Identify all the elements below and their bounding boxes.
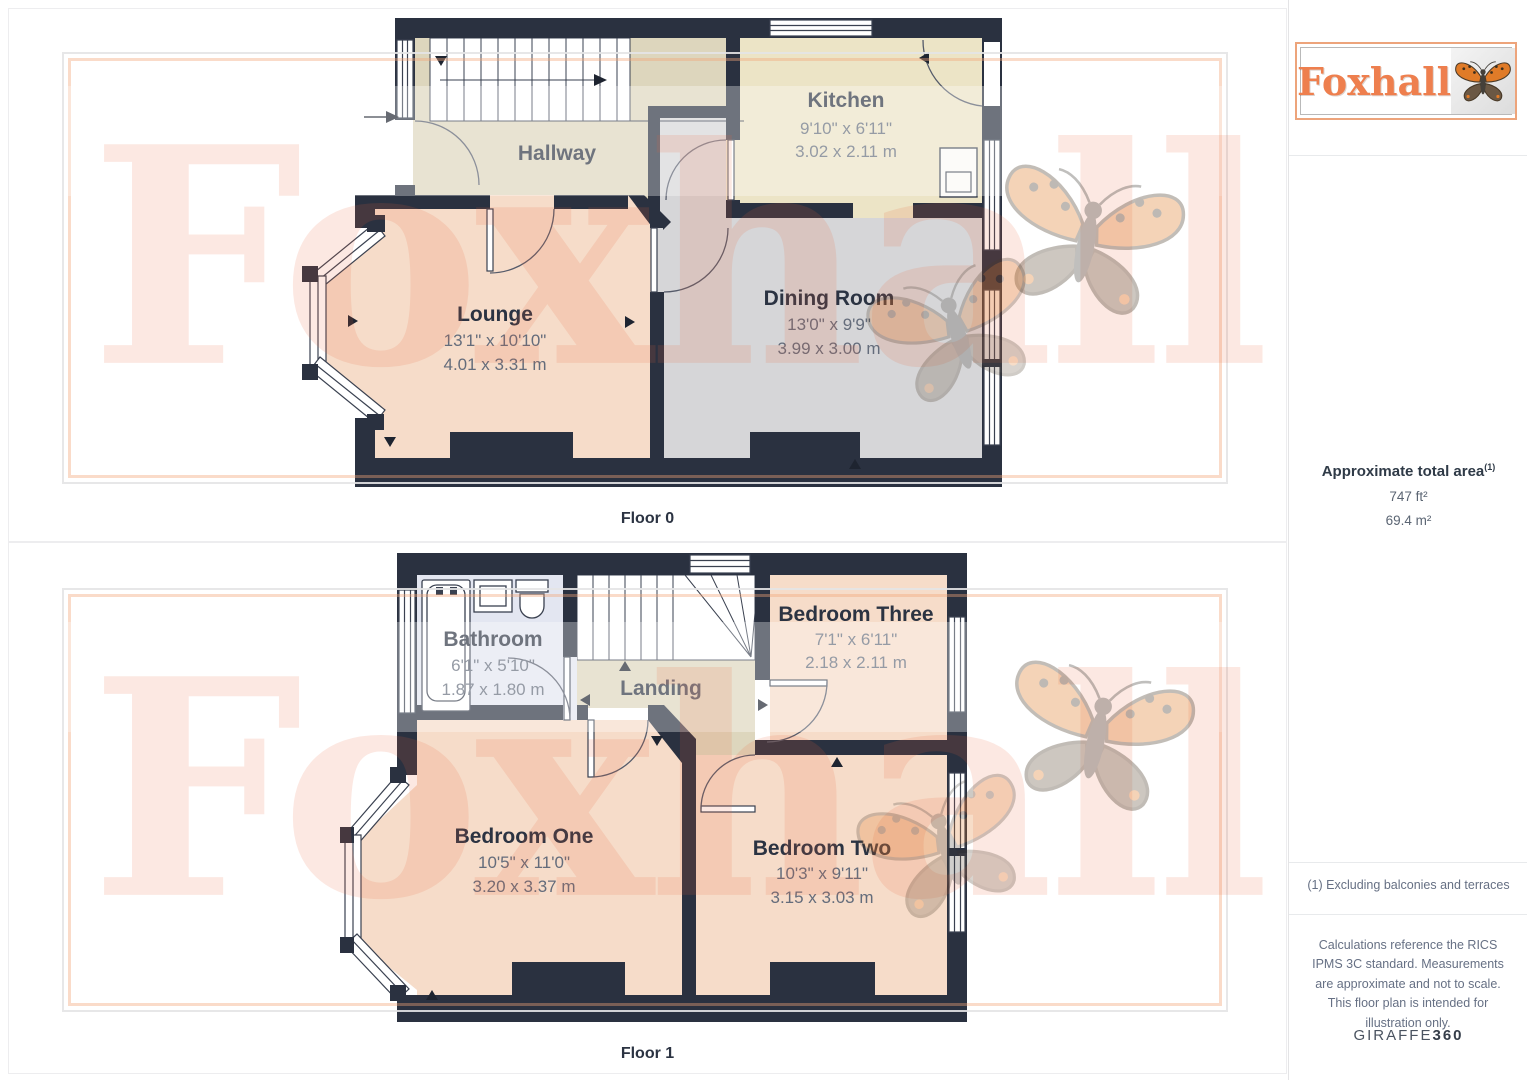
- total-area-title: Approximate total area(1): [1289, 462, 1527, 480]
- kitchen-window: [984, 140, 1000, 250]
- front-window-top: [770, 20, 872, 36]
- bathroom-window: [399, 590, 415, 713]
- toilet-cistern: [516, 580, 548, 592]
- footnote-marker: (1): [1484, 462, 1495, 472]
- bedroom-two-door-leaf: [701, 806, 755, 812]
- giraffe360-brand: GIRAFFE360: [1289, 1027, 1527, 1044]
- lounge-door-leaf: [487, 209, 493, 271]
- bathroom-metric: 1.87 x 1.80 m: [441, 680, 544, 699]
- bedroom-one-imperial: 10'5" x 11'0": [478, 853, 570, 872]
- landing-label: Landing: [620, 677, 702, 700]
- dining-chimney-breast: [750, 432, 860, 460]
- bedroom-one-metric: 3.20 x 3.37 m: [472, 877, 575, 896]
- kitchen-sink: [940, 148, 977, 197]
- disclaimer-text: Calculations reference the RICS IPMS 3C …: [1308, 936, 1508, 1033]
- floor0-caption: Floor 0: [8, 510, 1287, 528]
- sidebar: Foxhall Approximate total area(1) 747 ft…: [1288, 0, 1527, 1080]
- entry-arrow: [364, 111, 399, 123]
- floor1-staircase: [577, 575, 755, 660]
- agency-logo: Foxhall: [1295, 42, 1517, 120]
- sidebar-divider: [1289, 155, 1527, 156]
- total-area-metric: 69.4 m²: [1289, 513, 1527, 528]
- kitchen-dining-opening: [853, 203, 913, 218]
- brand-name: GIRAFFE: [1353, 1027, 1432, 1044]
- sidebar-divider: [1289, 862, 1527, 863]
- bedroom-three-label: Bedroom Three: [778, 603, 933, 626]
- sidebar-divider: [1289, 914, 1527, 915]
- dining-window: [982, 290, 1002, 445]
- kitchen-label: Kitchen: [807, 89, 884, 112]
- understairs-alcove: [660, 118, 726, 218]
- area-footnote: (1) Excluding balconies and terraces: [1289, 878, 1527, 892]
- dining-door-leaf: [651, 228, 657, 292]
- front-door-opening: [397, 120, 413, 185]
- bedroom-three-window: [949, 617, 965, 712]
- bedroom-two-metric: 3.15 x 3.03 m: [770, 888, 873, 907]
- total-area-title-text: Approximate total area: [1322, 463, 1485, 480]
- dining-label: Dining Room: [764, 287, 895, 310]
- toilet-bowl: [520, 594, 544, 618]
- total-area-imperial: 747 ft²: [1289, 489, 1527, 504]
- bedroom-one-door-leaf: [588, 720, 594, 777]
- butterfly-icon: [1451, 53, 1515, 109]
- bedroom-one-chimney-breast: [512, 962, 625, 995]
- bedroom-one-label: Bedroom One: [455, 825, 594, 848]
- lounge-floor: [375, 195, 657, 460]
- brand-suffix: 360: [1432, 1027, 1463, 1044]
- floor0-plan: Hallway Kitchen 9'10" x 6'11" 3.02 x 2.1…: [288, 18, 1005, 488]
- total-area-block: Approximate total area(1) 747 ft² 69.4 m…: [1289, 462, 1527, 528]
- lounge-label: Lounge: [457, 303, 533, 326]
- bedroom-two-chimney-breast: [770, 962, 875, 995]
- bedroom-three-metric: 2.18 x 2.11 m: [805, 653, 907, 672]
- dining-imperial: 13'0" x 9'9": [787, 315, 871, 334]
- dining-metric: 3.99 x 3.00 m: [777, 339, 880, 358]
- kitchen-metric: 3.02 x 2.11 m: [795, 142, 897, 161]
- floorplan-page: Hallway Kitchen 9'10" x 6'11" 3.02 x 2.1…: [0, 0, 1527, 1080]
- hallway-label: Hallway: [518, 142, 597, 165]
- floor1-plan: Bathroom 6'1" x 5'10" 1.87 x 1.80 m Land…: [330, 553, 975, 1023]
- bedroom-two-imperial: 10'3" x 9'11": [776, 864, 868, 883]
- kitchen-imperial: 9'10" x 6'11": [800, 119, 892, 138]
- bedroom-three-imperial: 7'1" x 6'11": [815, 630, 898, 649]
- stairwell-window-top: [690, 555, 750, 573]
- lounge-imperial: 13'1" x 10'10": [444, 331, 547, 350]
- lounge-metric: 4.01 x 3.31 m: [443, 355, 546, 374]
- bedroom-two-window: [947, 773, 967, 932]
- hallway-side-window: [397, 40, 413, 118]
- bathroom-imperial: 6'1" x 5'10": [451, 656, 535, 675]
- kitchen-door-leaf: [728, 140, 734, 200]
- butterfly-photo: [1451, 48, 1515, 114]
- bedroom-three-door-leaf: [770, 680, 827, 686]
- bedroom-two-label: Bedroom Two: [753, 837, 891, 860]
- kitchen-back-door-opening: [984, 42, 1000, 106]
- bathroom-label: Bathroom: [443, 628, 542, 651]
- floor1-caption: Floor 1: [8, 1045, 1287, 1063]
- agency-logo-text: Foxhall: [1297, 59, 1451, 104]
- lounge-chimney-breast: [450, 432, 573, 460]
